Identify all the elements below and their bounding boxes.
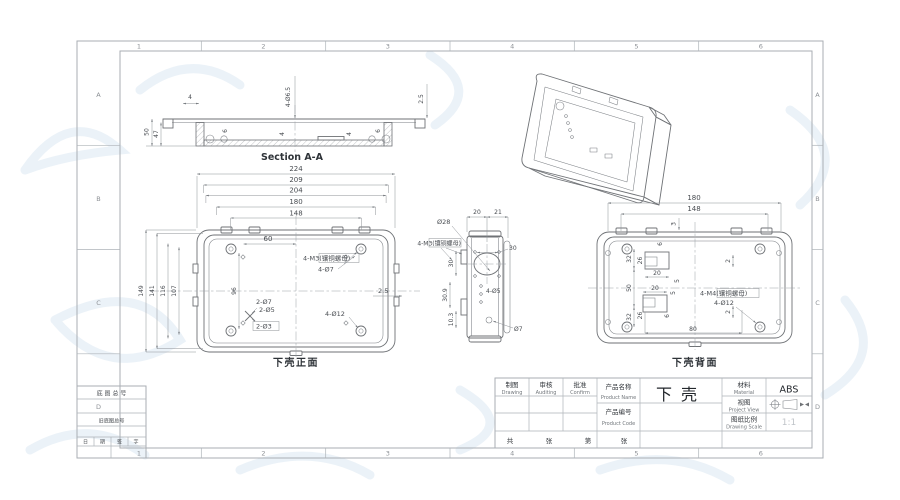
dim-50: 50 (626, 284, 633, 292)
approver-label: 批准 (574, 380, 588, 389)
dim-180: 180 (289, 198, 302, 206)
dim-26b: 26 (637, 312, 644, 320)
dim-6: 6 (375, 129, 382, 133)
product-code-label-en: Product Code (602, 421, 635, 427)
dim-148: 148 (289, 210, 302, 218)
dim-30-right: 30 (509, 245, 517, 252)
dim-148: 148 (687, 205, 700, 213)
label-d28: Ø28 (437, 218, 450, 226)
dim-209: 209 (289, 176, 302, 184)
sheet-no-label: 第 (585, 436, 592, 445)
col-label: 3 (386, 450, 390, 458)
dim-116: 116 (160, 285, 167, 297)
dim-32b: 32 (626, 313, 633, 321)
dim-6: 6 (222, 129, 229, 133)
material-label-en: Material (734, 390, 754, 396)
corner-boss (226, 244, 236, 254)
drafter-label: 制图 (506, 380, 519, 389)
dim-224: 224 (289, 165, 303, 173)
dim-3: 3 (671, 222, 678, 226)
sheets-unit-label: 张 (546, 436, 553, 445)
view-label: 视图 (738, 398, 751, 407)
row-label: B (96, 195, 100, 203)
dim-5b: 5 (670, 291, 677, 295)
dim-4: 4 (188, 94, 192, 101)
dim-2_5: 2.5 (378, 287, 388, 295)
material-value: ABS (780, 385, 799, 396)
label-m3-inserts: 4-M3(镶铜螺母) (303, 254, 350, 263)
label-d7: Ø7 (514, 326, 523, 333)
dim-20t: 20 (653, 270, 661, 277)
date-sign-cell: 期 (100, 440, 105, 446)
dim-107: 107 (171, 285, 178, 297)
back-view: 180 148 3 32 26 50 26 32 20 5 20 5 6 6 2… (588, 194, 800, 369)
drawing-sheet: 1 2 3 4 5 6 1 2 3 4 5 6 A B C D A B C D … (0, 0, 900, 500)
product-code-label: 产品编号 (606, 407, 633, 416)
dim-5t: 5 (674, 279, 681, 283)
row-label: C (815, 299, 820, 307)
product-name-label: 产品名称 (606, 382, 633, 391)
side-view: 20 21 Ø28 30 30 30.9 10.3 4-M3(镶铜螺母) 4-Ø… (417, 209, 522, 342)
label-4xd12: 4-Ø12 (325, 310, 345, 318)
date-sign-cell: 字 (133, 439, 138, 446)
dim-30-left: 30 (448, 260, 455, 268)
corner-boss (622, 244, 632, 254)
col-label: 5 (634, 450, 638, 458)
back-caption: 下壳背面 (672, 356, 718, 369)
label-4xd5: 4-Ø5 (486, 288, 501, 295)
auditor-label-en: Auditing (536, 390, 557, 396)
date-sign-cell: 签 (117, 439, 122, 446)
dim-30_9: 30.9 (442, 288, 449, 302)
dim-6b: 6 (664, 314, 671, 318)
col-label: 2 (261, 43, 265, 51)
dim-50: 50 (144, 128, 151, 136)
label-m4-inserts: 4-M4(镶铜螺母) (700, 289, 747, 298)
dim-2_5: 2.5 (418, 94, 425, 104)
label-m3-inserts: 4-M3(镶铜螺母) (417, 240, 461, 248)
col-label: 4 (510, 43, 514, 51)
dim-20: 20 (473, 209, 481, 216)
old-base-drawing-no-label: 旧底图总号 (99, 417, 125, 425)
label-2xd7: 2-Ø7 (256, 298, 272, 306)
row-label: D (96, 403, 101, 411)
corner-boss (755, 322, 765, 332)
label-4xd7: 4-Ø7 (318, 266, 334, 274)
approver-label-en: Confirm (570, 390, 590, 396)
product-name-label-en: Product Name (601, 395, 636, 401)
dim-180: 180 (687, 194, 700, 202)
col-label: 1 (137, 43, 141, 51)
scale-label: 图纸比例 (731, 415, 757, 424)
corner-boss (226, 326, 236, 336)
row-label: C (96, 299, 101, 307)
drafter-label-en: Drawing (502, 390, 523, 396)
row-label: A (96, 91, 101, 99)
section-caption: Section A-A (261, 152, 324, 163)
corner-boss (356, 244, 366, 254)
label-2xd3: 2-Ø3 (256, 323, 272, 331)
dim-10_3: 10.3 (448, 313, 455, 327)
dim-47: 47 (153, 130, 160, 138)
col-label: 4 (510, 450, 514, 458)
dim-21: 21 (494, 209, 502, 216)
material-label: 材料 (738, 380, 752, 389)
dim-96: 96 (231, 287, 238, 295)
label-4xd12: 4-Ø12 (714, 299, 734, 307)
col-label: 6 (759, 450, 763, 458)
auditor-label: 审核 (540, 380, 554, 389)
col-label: 5 (634, 43, 638, 51)
scale-value: 1:1 (782, 418, 796, 428)
iso-view (522, 74, 671, 205)
date-sign-cell: 日 (83, 440, 88, 446)
sheet-unit-label: 张 (621, 436, 628, 445)
product-name-value: 下壳 (656, 385, 706, 404)
row-label: A (815, 91, 820, 99)
col-label: 6 (759, 43, 763, 51)
corner-boss (622, 322, 632, 332)
sheets-total-label: 共 (507, 436, 514, 445)
row-label: B (815, 195, 819, 203)
title-block: 制图 Drawing 审核 Auditing 批准 Confirm 产品名称 P… (495, 378, 812, 448)
row-label: D (815, 403, 820, 411)
dim-2b: 2 (725, 310, 732, 314)
front-caption: 下壳正面 (273, 356, 319, 369)
projection-symbol-icon (770, 399, 810, 410)
scale-label-en: Drawing Scale (726, 425, 762, 431)
dim-6t: 6 (657, 242, 664, 246)
dim-4: 4 (279, 132, 286, 136)
dim-32t: 32 (626, 255, 633, 263)
col-label: 2 (261, 450, 265, 458)
dim-141: 141 (149, 285, 156, 297)
base-drawing-no-label: 底 图 总 号 (97, 390, 127, 398)
section-view: 4 4-Ø6.5 2.5 50 47 6 6 4 4 Section A-A (144, 76, 428, 163)
col-label: 1 (137, 450, 141, 458)
dim-60: 60 (264, 235, 273, 243)
dim-149: 149 (138, 285, 145, 297)
dim-26t: 26 (637, 257, 644, 265)
dim-204: 204 (289, 187, 303, 195)
dim-80: 80 (689, 326, 697, 333)
dim-4xd6_5: 4-Ø6.5 (285, 87, 292, 107)
corner-boss (755, 244, 765, 254)
col-label: 3 (386, 43, 390, 51)
dim-4: 4 (346, 132, 353, 136)
label-2xd5: 2-Ø5 (259, 306, 275, 314)
view-label-en: Project View (729, 408, 760, 414)
dim-20b: 20 (651, 285, 659, 292)
dim-2t: 2 (725, 259, 732, 263)
